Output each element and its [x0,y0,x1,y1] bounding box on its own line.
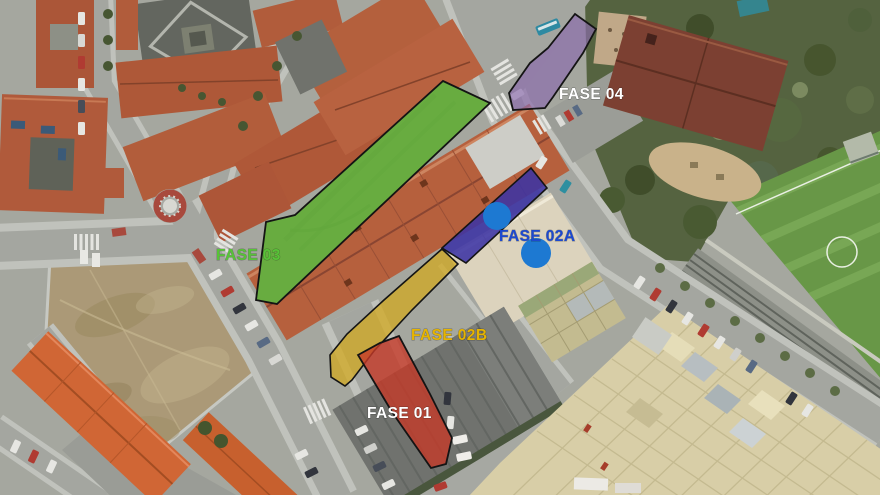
label-fase-02a: FASE 02A [499,228,575,245]
label-fase-02b: FASE 02B [411,327,487,344]
satellite-basemap: FASE 03 FASE 04 FASE 02A FASE 02B FASE 0… [0,0,880,495]
label-fase-01: FASE 01 [367,405,432,422]
label-fase-03: FASE 03 [216,247,281,264]
label-fase-04: FASE 04 [559,86,624,103]
phase-plan-aerial-map: FASE 03 FASE 04 FASE 02A FASE 02B FASE 0… [0,0,880,495]
location-marker-1 [483,202,511,230]
